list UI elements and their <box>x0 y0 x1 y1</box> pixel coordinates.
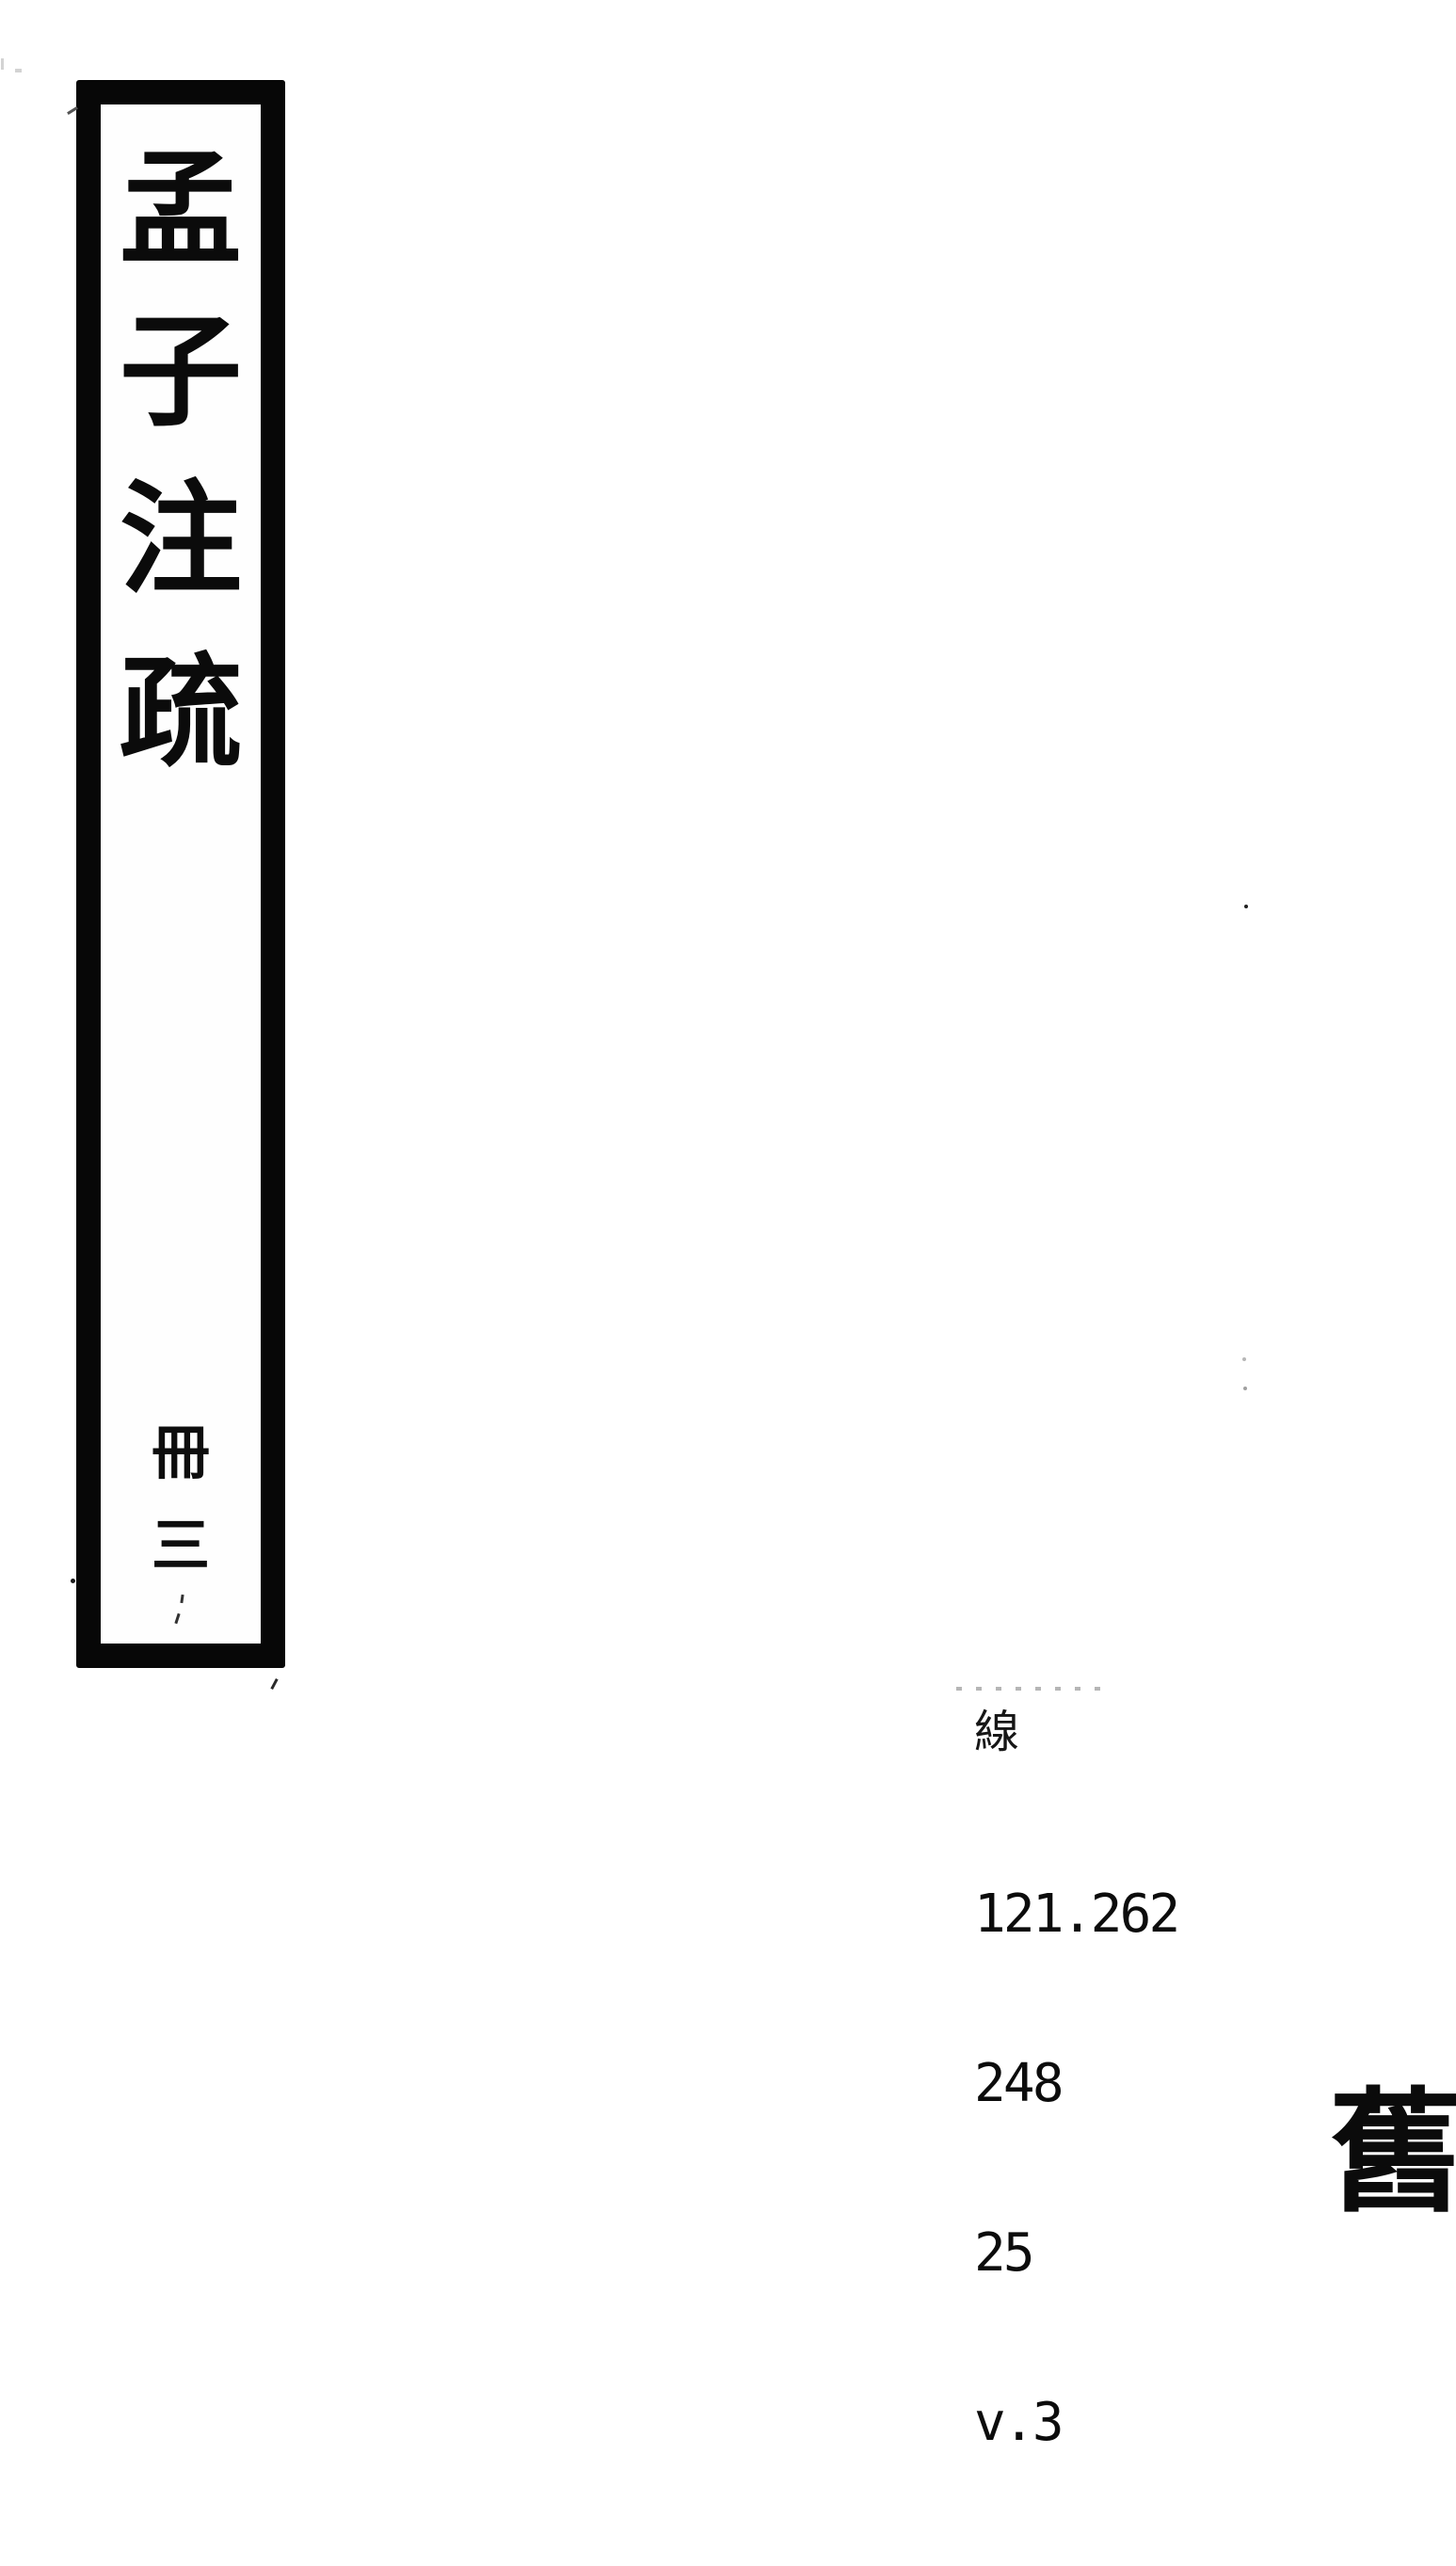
call-number-line: v.3 <box>974 2395 1177 2451</box>
scan-speck <box>270 1678 278 1690</box>
old-collection-stamp-char: 舊 <box>1329 2086 1456 2220</box>
spine-title-char: 子 <box>101 311 261 433</box>
faint-scan-line <box>956 1687 1110 1691</box>
call-number-line: 121.262 <box>974 1886 1177 1943</box>
call-number-line: 25 <box>974 2225 1177 2282</box>
scan-speck <box>1244 905 1248 908</box>
call-number-prefix-char: 線 <box>974 1709 1177 1755</box>
scan-speck <box>1242 1357 1246 1361</box>
spine-volume-char: 三 <box>101 1516 261 1575</box>
scan-speck <box>1243 1387 1247 1390</box>
scan-speck <box>15 69 22 72</box>
library-call-number: 線 121.262 248 25 v.3 <box>974 1709 1177 2564</box>
scan-speck <box>1 58 4 70</box>
scan-speck <box>71 1579 75 1583</box>
spine-volume-char: 冊 <box>101 1424 261 1483</box>
spine-title-char: 孟 <box>101 149 261 271</box>
spine-title-char: 疏 <box>101 651 261 774</box>
book-spine-label: 孟 子 注 疏 冊 三 <box>76 80 285 1668</box>
call-number-line: 248 <box>974 2056 1177 2112</box>
spine-title-char: 注 <box>101 478 261 601</box>
